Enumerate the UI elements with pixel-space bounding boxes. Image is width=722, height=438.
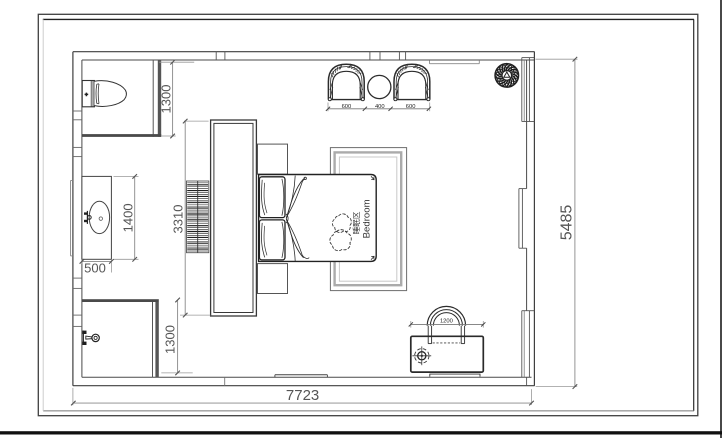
svg-text:5485: 5485 xyxy=(559,205,576,241)
svg-text:500: 500 xyxy=(84,261,106,276)
svg-text:7723: 7723 xyxy=(286,387,319,404)
svg-text:睡眠区: 睡眠区 xyxy=(352,211,361,234)
svg-text:1300: 1300 xyxy=(159,85,174,114)
svg-text:600: 600 xyxy=(342,104,352,110)
svg-text:1200: 1200 xyxy=(440,318,453,324)
svg-text:Bedroom: Bedroom xyxy=(362,199,373,238)
svg-text:600: 600 xyxy=(406,104,416,110)
svg-text:3310: 3310 xyxy=(171,205,186,234)
svg-text:1300: 1300 xyxy=(163,325,178,354)
svg-text:1400: 1400 xyxy=(121,203,136,232)
svg-text:400: 400 xyxy=(375,104,385,110)
